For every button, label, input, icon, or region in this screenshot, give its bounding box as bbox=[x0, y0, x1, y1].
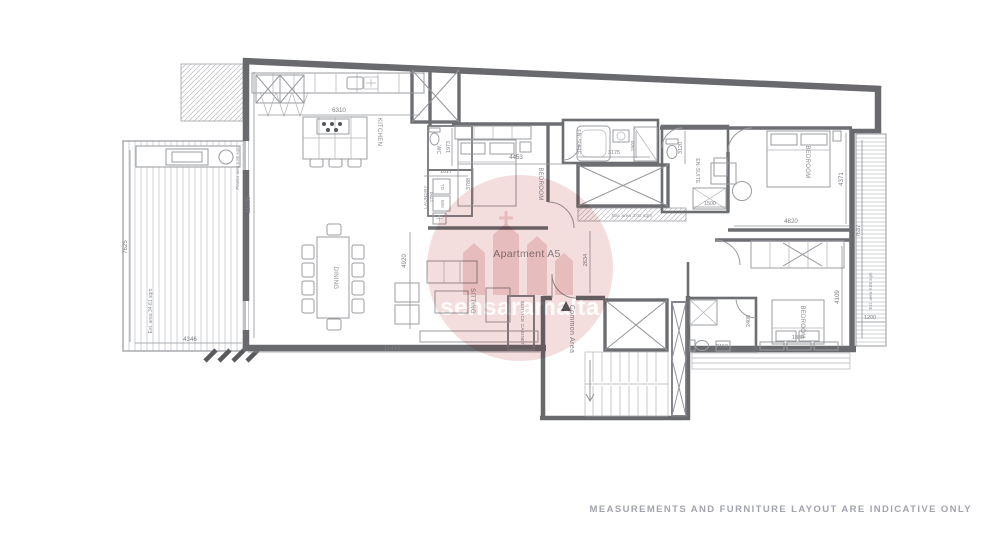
hob-burner-1 bbox=[322, 122, 326, 126]
dim-laundry-height: 1790 bbox=[429, 191, 435, 202]
dining-chair bbox=[327, 224, 341, 235]
label-td: TD bbox=[440, 184, 445, 190]
label-sitting: SITTING bbox=[469, 288, 475, 314]
island-stool-2 bbox=[329, 159, 342, 167]
door-ensuite3 bbox=[736, 298, 756, 318]
dim-kitchen-width: 6310 bbox=[332, 107, 346, 114]
door-bedroom3 bbox=[715, 240, 740, 265]
dim-ensuite3-width: 2150 bbox=[716, 344, 728, 350]
floorplan-shapes bbox=[123, 58, 886, 420]
dim-terrace-width: 4346 bbox=[183, 336, 197, 343]
dim-sitting-height: 4920 bbox=[401, 254, 408, 268]
label-kitchen: KITCHEN bbox=[376, 118, 382, 146]
sofa-cushions bbox=[444, 261, 460, 283]
toilet1-tank bbox=[429, 128, 440, 132]
bottom-right-strip bbox=[692, 353, 850, 369]
dim-bedroom1-height: 3788 bbox=[466, 178, 472, 190]
toilet2-tank bbox=[666, 139, 678, 144]
bedroom2-walls bbox=[660, 128, 852, 230]
kitchen-counter-lines bbox=[273, 73, 399, 93]
cabinet-x-left bbox=[256, 75, 304, 103]
label-laundry: LAUNDRY bbox=[423, 185, 428, 208]
label-bedroom-2: BEDROOM bbox=[804, 145, 810, 178]
label-common-area: Common Area bbox=[568, 305, 575, 354]
terrace-sink bbox=[219, 150, 233, 164]
dim-living-width: 11410 bbox=[384, 345, 401, 352]
planter-hatch bbox=[181, 64, 243, 121]
dim-wc-height: 1973 bbox=[446, 141, 452, 153]
bedside1 bbox=[520, 142, 531, 152]
hob-burner-3 bbox=[338, 122, 342, 126]
shaft3-box bbox=[672, 302, 686, 416]
shower1-diag bbox=[634, 127, 657, 161]
elevator-x bbox=[605, 300, 667, 350]
dim-balcony-width: 1200 bbox=[864, 315, 876, 321]
dim-ensuite1-width: 3175 bbox=[608, 150, 620, 156]
bed2 bbox=[767, 131, 830, 187]
dim-ensuite3-height: 2400 bbox=[746, 315, 752, 327]
bottom-right-strip-lines bbox=[692, 358, 850, 363]
armchair-2 bbox=[395, 305, 419, 324]
toilet1-bowl bbox=[430, 133, 439, 145]
armchair-1 bbox=[395, 283, 419, 302]
sink1-bowl bbox=[617, 132, 625, 140]
kitchen-cooktop-icon bbox=[364, 77, 378, 89]
hob-burner-5 bbox=[334, 128, 338, 132]
bathtub-inner bbox=[581, 130, 606, 157]
door-bedroom1 bbox=[548, 202, 574, 228]
chaise bbox=[486, 288, 510, 322]
shaft1-x bbox=[412, 70, 459, 122]
dim-shower2-width: 1500 bbox=[704, 201, 716, 207]
dining-chair bbox=[352, 263, 364, 277]
vanity2 bbox=[714, 158, 727, 176]
dim-ensuite1-height: 1503 bbox=[630, 140, 636, 151]
dim-bedroom3-height: 4109 bbox=[834, 290, 841, 304]
kitchen-sink bbox=[347, 77, 363, 89]
dim-balcony-height: 7537 bbox=[856, 225, 862, 237]
label-balcony-area: Ext. area 9.05 sqm bbox=[868, 272, 873, 309]
dim-bedroom1-width: 4453 bbox=[509, 154, 523, 161]
door-entrance bbox=[552, 274, 576, 298]
wardrobe1-lines bbox=[474, 126, 512, 139]
terrace-deck bbox=[123, 141, 245, 351]
island-grid bbox=[303, 117, 367, 159]
label-wc: WC bbox=[435, 145, 441, 154]
dim-corridor-height: 2634 bbox=[583, 254, 589, 266]
label-wm: WM bbox=[440, 200, 445, 208]
desk2 bbox=[711, 163, 736, 184]
dim-laundry-width: 1617 bbox=[440, 169, 452, 175]
dim-bedroom2-width: 4820 bbox=[784, 218, 798, 225]
kitchen-counter bbox=[252, 73, 424, 93]
sofa bbox=[427, 261, 477, 283]
dining-chair bbox=[352, 281, 364, 295]
dining-chair bbox=[302, 281, 314, 295]
island-stool-1 bbox=[310, 159, 323, 167]
label-planter-area: Planter area 8.88 sqm bbox=[235, 146, 240, 190]
shaft3-x bbox=[672, 302, 686, 416]
dining-chair bbox=[302, 299, 314, 313]
hob-burner-2 bbox=[330, 122, 334, 126]
shaft2-x bbox=[578, 165, 668, 206]
dim-ensuite2-height: 3120 bbox=[678, 142, 684, 154]
floorplan-canvas: 6310112207625434619731617179044533788317… bbox=[0, 0, 1000, 550]
dining-chair bbox=[352, 299, 364, 313]
label-ensuite-2: EN-SUITE bbox=[694, 158, 700, 184]
apartment-title: Apartment A5 bbox=[493, 248, 560, 260]
toilet2-bowl bbox=[667, 146, 677, 159]
label-bedroom-3: BEDROOM bbox=[799, 305, 805, 338]
dining-chair bbox=[327, 319, 341, 330]
island-hob bbox=[317, 119, 349, 134]
wardrobe3 bbox=[751, 241, 844, 268]
stairs-treads bbox=[585, 352, 668, 416]
dim-left-wall: 11220 bbox=[245, 196, 252, 213]
label-shaft-area: Ext. area 3.02 sqm bbox=[612, 213, 652, 219]
shower3-diag bbox=[690, 300, 717, 325]
round-table bbox=[733, 182, 752, 201]
label-ensuite-1: EN-SUITE bbox=[575, 129, 581, 155]
dim-terrace-height: 7625 bbox=[122, 240, 129, 254]
bedside2 bbox=[833, 131, 841, 141]
island-stool-3 bbox=[348, 159, 361, 167]
label-terrace-area: Ext. area 34.61 sqm bbox=[148, 289, 154, 334]
label-bedroom-1: BEDROOM bbox=[537, 167, 543, 200]
dining-chair bbox=[352, 245, 364, 259]
coffee-table bbox=[435, 291, 468, 313]
pantry-chevrons bbox=[260, 92, 308, 116]
disclaimer-text: MEASUREMENTS AND FURNITURE LAYOUT ARE IN… bbox=[590, 504, 972, 515]
bed1 bbox=[458, 140, 516, 206]
dining-chair bbox=[302, 263, 314, 277]
door-bedroom2 bbox=[728, 128, 752, 152]
label-dining: DINING bbox=[332, 267, 338, 290]
dining-chair bbox=[302, 245, 314, 259]
floorplan-svg: 6310112207625434619731617179044533788317… bbox=[0, 0, 1000, 550]
dim-bedroom2-height: 4371 bbox=[838, 172, 845, 186]
bed2-pillows bbox=[771, 134, 827, 145]
label-service-cabinet: SERVICE CABINET bbox=[520, 301, 525, 346]
outer-top-wall bbox=[243, 61, 881, 89]
hob-burner-4 bbox=[326, 128, 330, 132]
bed1-pillows bbox=[461, 143, 514, 154]
